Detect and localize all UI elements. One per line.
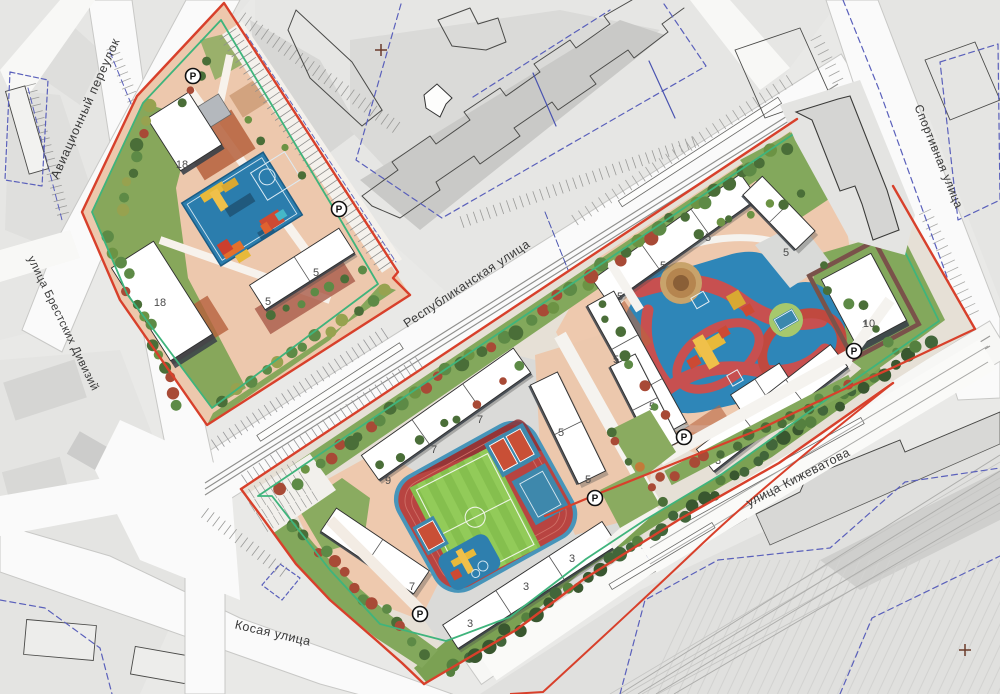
svg-text:P: P xyxy=(417,610,424,621)
svg-text:18: 18 xyxy=(176,159,188,171)
svg-text:5: 5 xyxy=(313,267,319,279)
svg-text:P: P xyxy=(190,72,197,83)
svg-text:5: 5 xyxy=(585,474,591,486)
svg-text:3: 3 xyxy=(523,581,529,593)
svg-text:9: 9 xyxy=(385,475,391,487)
svg-text:18: 18 xyxy=(154,297,166,309)
svg-text:P: P xyxy=(592,494,599,505)
svg-text:5: 5 xyxy=(558,427,564,439)
svg-text:P: P xyxy=(336,205,343,216)
svg-text:P: P xyxy=(851,347,858,358)
svg-text:7: 7 xyxy=(477,414,483,426)
svg-text:3: 3 xyxy=(569,553,575,565)
svg-text:5: 5 xyxy=(783,247,789,259)
svg-text:5: 5 xyxy=(705,232,711,244)
svg-text:10: 10 xyxy=(863,318,875,330)
svg-text:7: 7 xyxy=(409,581,415,593)
svg-text:7: 7 xyxy=(431,444,437,456)
svg-text:5: 5 xyxy=(660,260,666,272)
svg-text:P: P xyxy=(681,433,688,444)
svg-text:3: 3 xyxy=(467,618,473,630)
svg-text:5: 5 xyxy=(265,296,271,308)
